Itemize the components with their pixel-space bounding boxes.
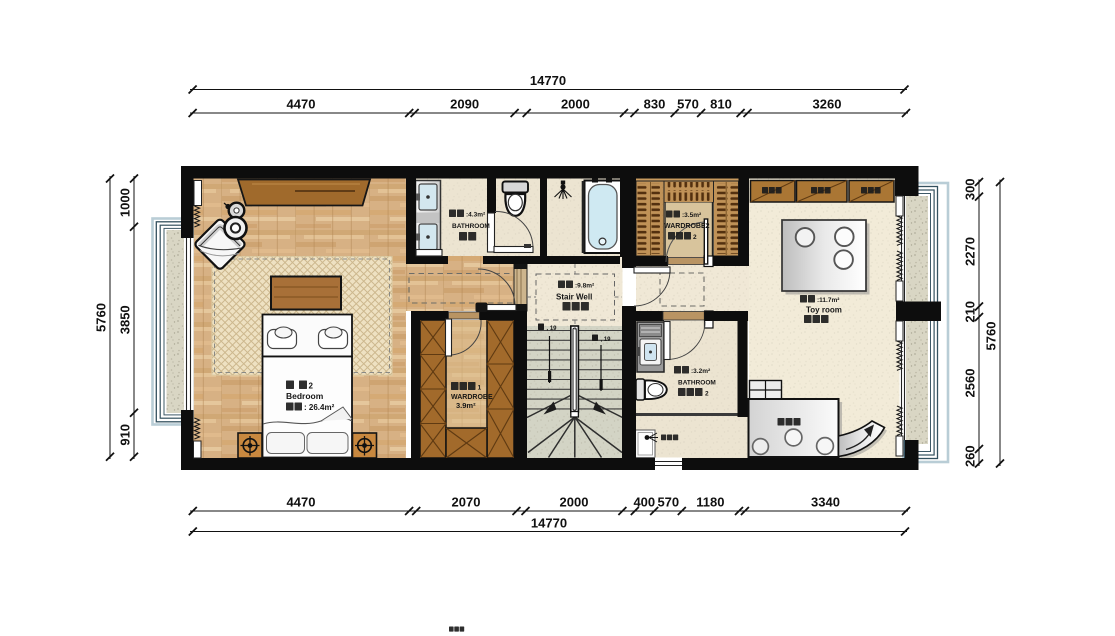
- svg-text:400: 400: [633, 495, 655, 510]
- svg-text:14770: 14770: [531, 516, 567, 531]
- svg-text:1: 1: [478, 385, 482, 392]
- svg-text:570: 570: [677, 97, 699, 112]
- svg-text:210: 210: [963, 301, 978, 323]
- svg-text:2270: 2270: [963, 237, 978, 266]
- svg-text:14770: 14770: [530, 73, 566, 88]
- svg-text:2: 2: [693, 234, 697, 241]
- svg-text:2560: 2560: [963, 369, 978, 398]
- svg-text:3850: 3850: [118, 305, 133, 334]
- svg-text:2: 2: [705, 391, 709, 398]
- svg-text:Stair Well: Stair Well: [556, 293, 592, 302]
- svg-text:BATHROOM: BATHROOM: [678, 380, 716, 387]
- svg-text:: 26.4m²: : 26.4m²: [304, 403, 335, 412]
- svg-text:2070: 2070: [452, 495, 481, 510]
- svg-text::11.7m²: :11.7m²: [817, 297, 840, 304]
- svg-text:5760: 5760: [94, 303, 109, 332]
- svg-text:1180: 1180: [696, 495, 724, 510]
- svg-text:BATHROOM: BATHROOM: [452, 223, 490, 230]
- svg-text:Toy room: Toy room: [806, 306, 842, 315]
- svg-text:300: 300: [963, 178, 978, 200]
- svg-text:2000: 2000: [560, 495, 589, 510]
- svg-text:1000: 1000: [118, 188, 133, 217]
- svg-text:3260: 3260: [813, 97, 842, 112]
- svg-text:Bedroom: Bedroom: [286, 391, 324, 401]
- svg-text:2000: 2000: [561, 97, 590, 112]
- svg-text:570: 570: [657, 495, 679, 510]
- svg-text::3.2m²: :3.2m²: [691, 368, 711, 375]
- svg-text:, 19: , 19: [601, 337, 612, 343]
- svg-text:2090: 2090: [450, 97, 479, 112]
- svg-text:WARDROBE2: WARDROBE2: [664, 223, 710, 230]
- svg-text:810: 810: [710, 97, 732, 112]
- svg-text:830: 830: [644, 97, 666, 112]
- svg-text::4.3m²: :4.3m²: [466, 212, 486, 219]
- svg-text:4470: 4470: [287, 97, 316, 112]
- svg-text:5760: 5760: [984, 322, 999, 351]
- svg-text:4470: 4470: [287, 495, 316, 510]
- svg-text:3340: 3340: [811, 495, 840, 510]
- svg-text:2: 2: [309, 382, 314, 391]
- svg-text::3.5m²: :3.5m²: [682, 212, 702, 219]
- svg-text::9.8m²: :9.8m²: [575, 283, 595, 290]
- svg-text:3.9m²: 3.9m²: [456, 401, 476, 410]
- svg-text:, 19: , 19: [547, 326, 558, 332]
- svg-text:910: 910: [118, 424, 133, 446]
- svg-text:260: 260: [963, 445, 978, 467]
- svg-text:WARDROBE: WARDROBE: [451, 394, 493, 401]
